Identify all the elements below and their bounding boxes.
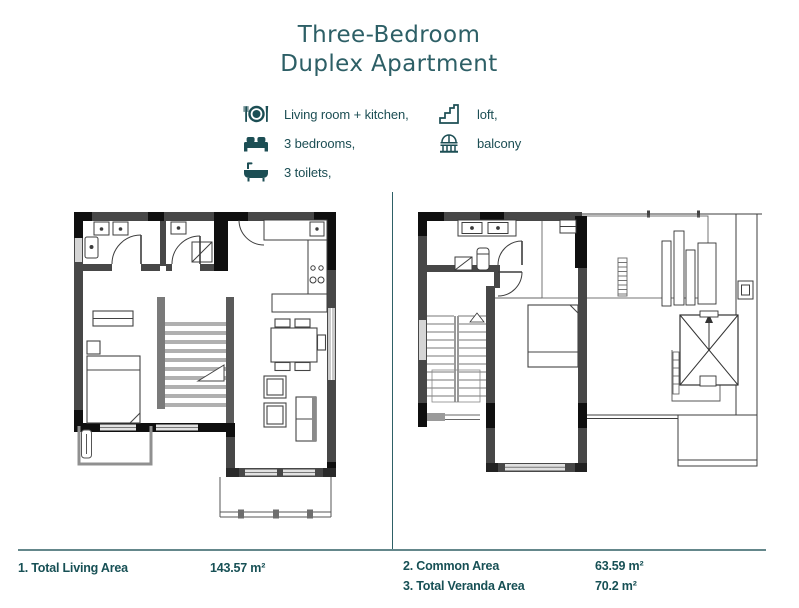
bed [87,356,140,423]
legend-item-loft: loft, [434,101,497,127]
floorplan-page: Three-Bedroom Duplex Apartment Living ro… [0,0,799,608]
legend-label: loft, [477,107,497,122]
bedroom-furniture [87,311,140,423]
dining-table [271,328,317,362]
stat-total-living-area-label: 1. Total Living Area [18,561,128,575]
stairs-icon [434,103,464,125]
footer-rule [18,549,766,551]
bed-icon [241,133,271,153]
stat-total-veranda-area-label: 3. Total Veranda Area [403,579,525,593]
doors [498,241,522,296]
floor-plan-level-2 [410,200,770,492]
nightstand [87,341,100,354]
stat-common-area-value: 63.59 m² [595,559,643,573]
stat-common-area-label: 2. Common Area [403,559,499,573]
legend-item-toilets: 3 toilets, [241,159,331,185]
legend-label: 3 toilets, [284,165,331,180]
balcony-icon [434,132,464,154]
doors [112,220,264,264]
kitchen [264,220,327,312]
staircase [427,313,486,421]
staircase [165,324,226,405]
stat-total-living-area-value: 143.57 m² [210,561,265,575]
living-furniture [264,376,316,441]
plans-vertical-divider [392,192,393,550]
page-title-line1: Three-Bedroom [0,21,778,50]
legend-item-balcony: balcony [434,130,521,156]
stat-total-veranda-area-value: 70.2 m² [595,579,637,593]
dining-set [271,319,326,371]
dining-icon [241,102,271,126]
legend-item-bedrooms: 3 bedrooms, [241,130,355,156]
legend-label: 3 bedrooms, [284,136,355,151]
floor-plan-level-1 [60,204,348,528]
loft-railing [618,258,627,296]
legend-label: balcony [477,136,521,151]
page-title: Three-Bedroom Duplex Apartment [0,21,778,79]
stair-direction-arrow [470,313,484,322]
bathtub-icon [241,161,271,183]
bed [528,305,578,367]
bathroom-fixtures [85,222,212,262]
legend-item-living-kitchen: Living room + kitchen, [241,101,409,127]
page-title-line2: Duplex Apartment [0,50,778,79]
skylight [672,311,738,401]
bathroom-fixtures [455,220,576,270]
veranda-area [220,477,331,519]
legend-label: Living room + kitchen, [284,107,409,122]
